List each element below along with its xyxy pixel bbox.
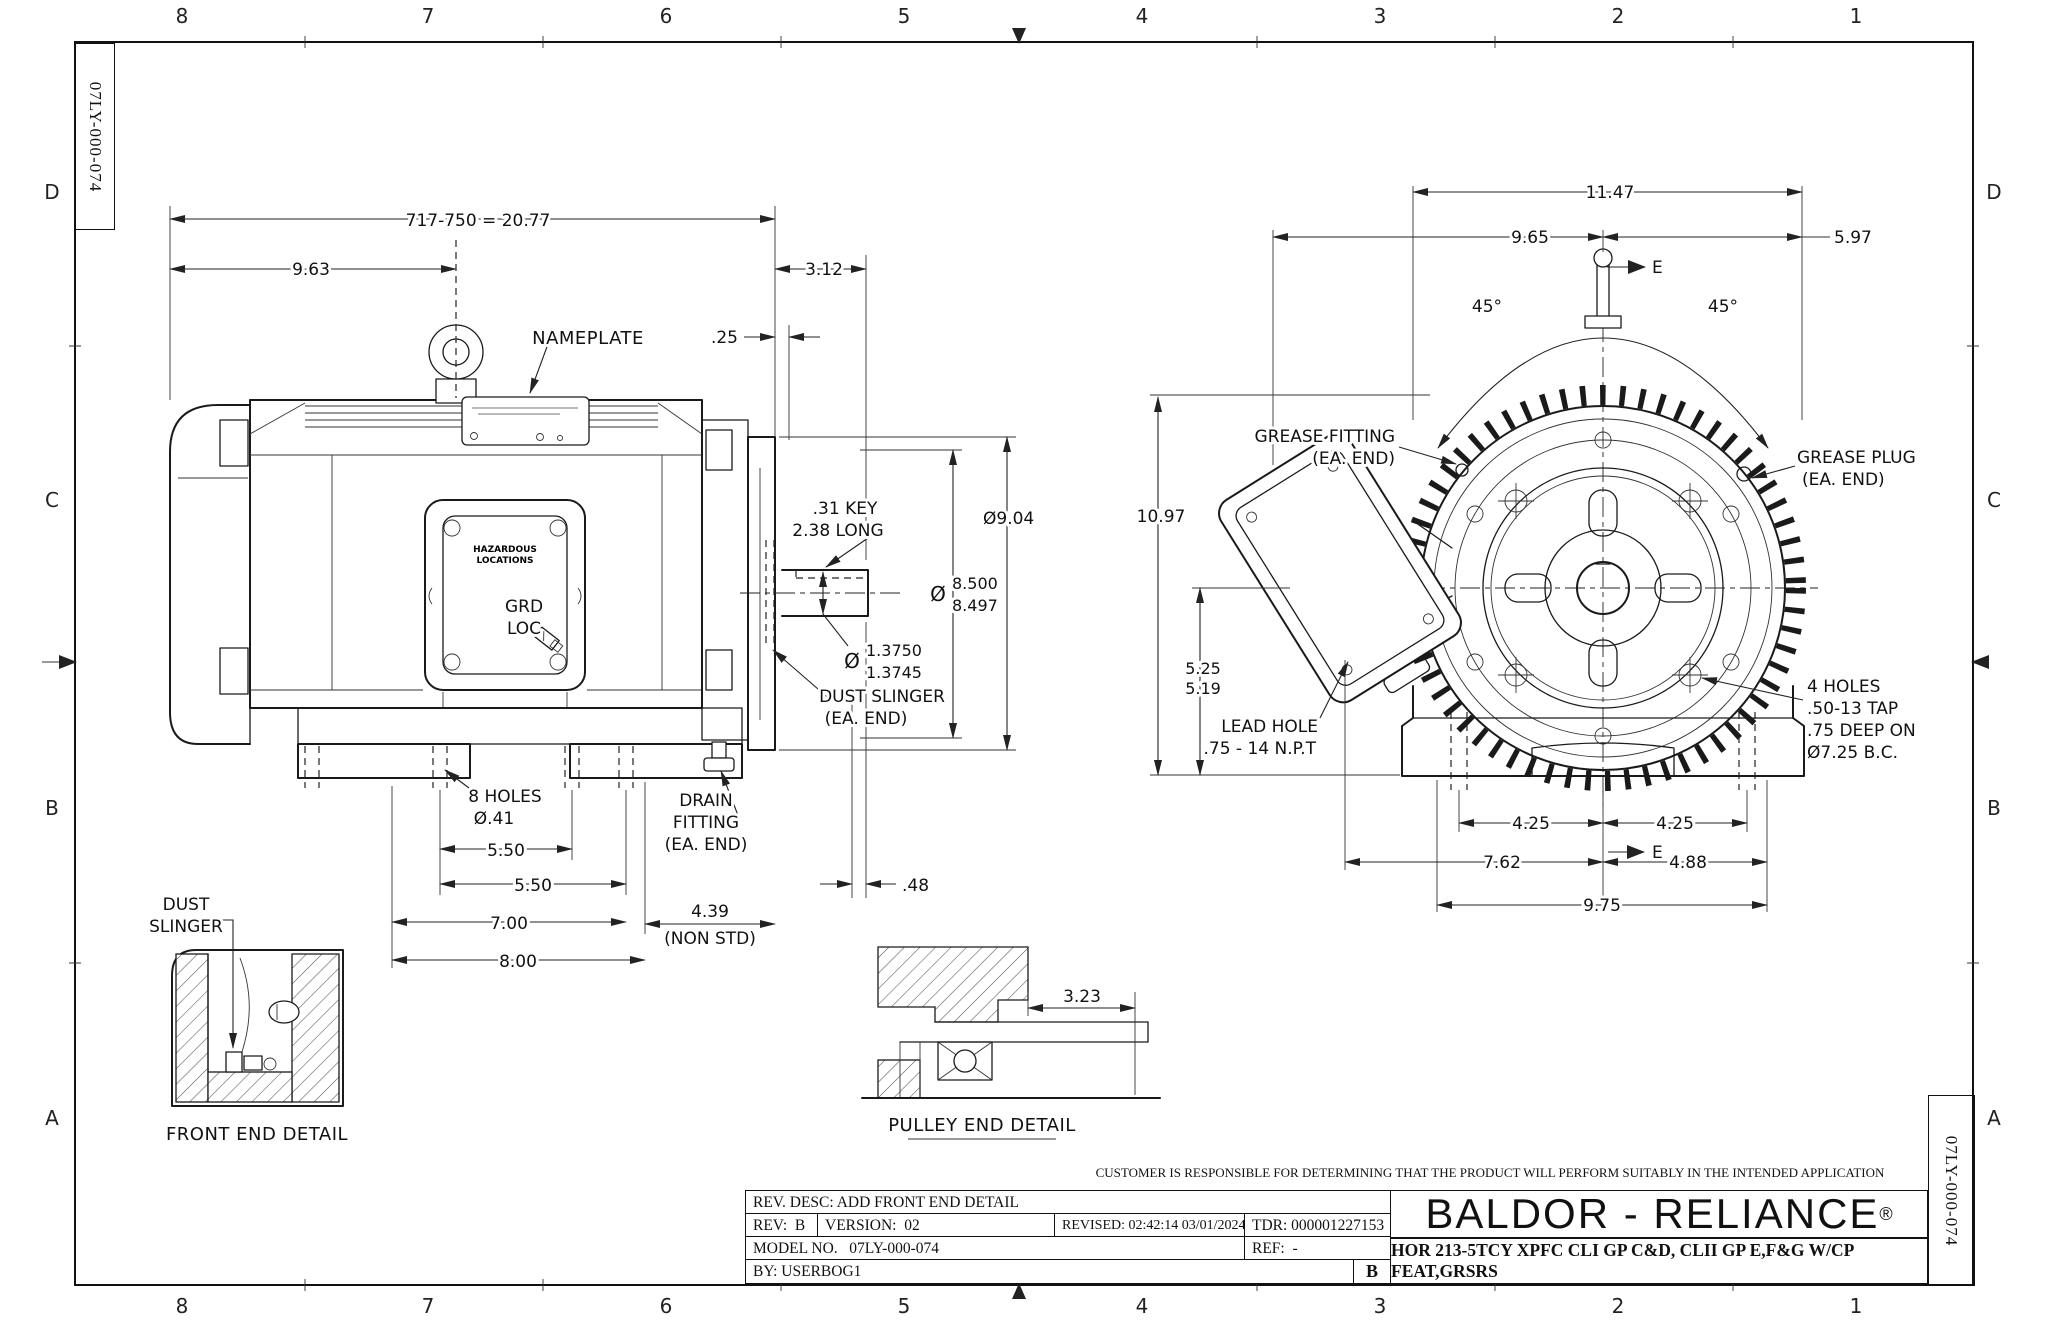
grid-top-7: 7 <box>414 4 442 28</box>
dim-5-25: 5.25 <box>1185 659 1221 678</box>
grid-top-3: 3 <box>1366 4 1394 28</box>
dim-0-48: .48 <box>902 876 929 896</box>
angle-45-left: 45° <box>1472 297 1502 317</box>
dust-slinger-callout-2: (EA. END) <box>825 709 908 729</box>
doc-number-box-top-left: 07LY-000-074 <box>75 43 115 230</box>
dim-5-19: 5.19 <box>1185 679 1221 698</box>
feet-holes-callout-1: 8 HOLES <box>468 787 541 807</box>
front-detail-label-1: DUST <box>163 895 210 915</box>
dim-4-25-left: 4.25 <box>1512 814 1550 834</box>
grd-label: GRD <box>505 597 543 617</box>
drive-end-bracket <box>702 325 789 750</box>
tap-holes-callout-3: .75 DEEP ON <box>1807 721 1916 741</box>
pulley-detail-caption: PULLEY END DETAIL <box>888 1115 1076 1136</box>
loc-label: LOC <box>507 619 541 639</box>
dim-dia-9-04: Ø9.04 <box>983 509 1034 529</box>
dim-4-88: 4.88 <box>1669 853 1707 873</box>
doc-number-box-bottom-right: 07LY-000-074 <box>1928 1095 1975 1286</box>
dia-symbol-ak: Ø <box>930 582 946 606</box>
grid-right-c: C <box>1980 488 2008 512</box>
feet-holes-callout-2: Ø.41 <box>474 809 514 829</box>
product-description-cell: HOR 213-5TCY XPFC CLI GP C&D, CLII GP E,… <box>1390 1238 1928 1284</box>
dim-shaft-1-3750: 1.3750 <box>866 641 922 660</box>
grid-top-2: 2 <box>1604 4 1632 28</box>
hazardous-label-2: LOCATIONS <box>476 556 533 566</box>
drawing-sheet: 717-750 = 20.77 9.63 3.12 .25 NAMEPLATE … <box>0 0 2048 1325</box>
grid-bottom-4: 4 <box>1128 1294 1156 1318</box>
grid-bottom-8: 8 <box>168 1294 196 1318</box>
side-view: 717-750 = 20.77 9.63 3.12 .25 NAMEPLATE … <box>170 206 1034 972</box>
dim-5-97: 5.97 <box>1834 228 1872 248</box>
key-callout-2: 2.38 LONG <box>792 521 883 541</box>
grease-plug-callout-2: (EA. END) <box>1802 470 1885 490</box>
grid-left-a: A <box>38 1106 66 1130</box>
drain-fitting <box>704 742 734 771</box>
revised-cell: REVISED: 02:42:14 03/01/2024 <box>1054 1213 1246 1238</box>
dim-ak-8-500: 8.500 <box>952 574 998 593</box>
dim-4-25-right: 4.25 <box>1656 814 1694 834</box>
rev-cell: REV: B <box>745 1213 819 1238</box>
doc-number-bottom-right: 07LY-000-074 <box>1942 1135 1962 1245</box>
grid-bottom-5: 5 <box>890 1294 918 1318</box>
tap-holes-callout-1: 4 HOLES <box>1807 677 1880 697</box>
grid-bottom-2: 2 <box>1604 1294 1632 1318</box>
section-arrow-bottom <box>1608 845 1645 859</box>
end-view-conduit-box <box>1213 428 1475 722</box>
angle-45-right: 45° <box>1708 297 1738 317</box>
grid-bottom-7: 7 <box>414 1294 442 1318</box>
disclaimer-note: CUSTOMER IS RESPONSIBLE FOR DETERMINING … <box>1095 1165 1885 1181</box>
registered-mark: ® <box>1879 1204 1892 1225</box>
grease-plug-callout-1: GREASE PLUG <box>1797 448 1916 468</box>
lead-hole-callout-1: LEAD HOLE <box>1221 717 1318 737</box>
grid-left-b: B <box>38 796 66 820</box>
nameplate <box>462 397 589 445</box>
dim-4-39-note: (NON STD) <box>664 929 756 949</box>
grid-bottom-6: 6 <box>652 1294 680 1318</box>
dim-3-23: 3.23 <box>1063 987 1101 1007</box>
drain-callout-3: (EA. END) <box>665 835 748 855</box>
dim-9-65: 9.65 <box>1511 228 1549 248</box>
grid-bottom-1: 1 <box>1842 1294 1870 1318</box>
dim-shaft-1-3745: 1.3745 <box>866 663 922 682</box>
dia-symbol-shaft: Ø <box>844 649 860 673</box>
by-cell: BY: USERBOG1 <box>745 1259 1391 1284</box>
tap-holes-callout-2: .50-13 TAP <box>1807 699 1898 719</box>
lead-hole-callout-2: .75 - 14 N.P.T <box>1203 739 1316 759</box>
engineering-drawing-canvas: 717-750 = 20.77 9.63 3.12 .25 NAMEPLATE … <box>0 0 2048 1325</box>
grid-top-4: 4 <box>1128 4 1156 28</box>
grease-fitting-callout-1: GREASE FITTING <box>1255 427 1395 447</box>
section-label-top: E <box>1652 258 1663 278</box>
pulley-end-detail: 3.23 PULLEY END DETAIL <box>862 947 1160 1139</box>
dim-7-00: 7.00 <box>490 914 528 934</box>
dim-5-50-b: 5.50 <box>514 876 552 896</box>
dim-9-75: 9.75 <box>1583 896 1621 916</box>
tap-holes-callout-4: Ø7.25 B.C. <box>1807 743 1898 763</box>
dim-7-62: 7.62 <box>1483 853 1521 873</box>
grease-fitting-callout-2: (EA. END) <box>1312 449 1395 469</box>
dim-4-39: 4.39 <box>691 902 729 922</box>
front-detail-label-2: SLINGER <box>149 917 223 937</box>
grid-top-8: 8 <box>168 4 196 28</box>
grid-right-a: A <box>1980 1106 2008 1130</box>
grid-right-d: D <box>1980 180 2008 204</box>
nameplate-label: NAMEPLATE <box>532 328 644 349</box>
grid-right-b: B <box>1980 796 2008 820</box>
motor-feet <box>298 708 742 788</box>
grid-bottom-3: 3 <box>1366 1294 1394 1318</box>
grid-top-1: 1 <box>1842 4 1870 28</box>
drain-callout-2: FITTING <box>673 813 739 833</box>
key-callout-1: .31 KEY <box>813 499 878 519</box>
tdr-cell: TDR: 000001227153 <box>1244 1213 1391 1238</box>
dim-ak-8-497: 8.497 <box>952 596 998 615</box>
dim-3-12: 3.12 <box>805 260 843 280</box>
dim-8-00: 8.00 <box>499 952 537 972</box>
dim-11-47: 11.47 <box>1586 183 1635 203</box>
doc-number-top-left: 07LY-000-074 <box>85 81 105 191</box>
hazardous-label-1: HAZARDOUS <box>473 545 537 555</box>
section-label-bottom: E <box>1652 843 1663 863</box>
grid-left-d: D <box>38 180 66 204</box>
dim-5-50-a: 5.50 <box>487 841 525 861</box>
model-no-cell: MODEL NO. 07LY-000-074 <box>745 1236 1246 1261</box>
end-view: 11.47 9.65 5.97 45° 45° E E 10.97 5.25 5… <box>1137 183 1916 916</box>
grid-left-c: C <box>38 488 66 512</box>
end-view-eyebolt <box>1585 249 1621 328</box>
rev-desc-cell: REV. DESC: ADD FRONT END DETAIL <box>745 1190 1391 1215</box>
dim-10-97: 10.97 <box>1137 507 1186 527</box>
eyebolt <box>429 240 483 403</box>
dust-slinger-callout-1: DUST SLINGER <box>819 687 945 707</box>
section-arrow-top <box>1607 260 1646 274</box>
brand-cell: BALDOR - RELIANCE® <box>1390 1190 1928 1238</box>
ref-cell: REF: - <box>1244 1236 1391 1261</box>
drain-callout-1: DRAIN <box>679 791 733 811</box>
front-detail-caption: FRONT END DETAIL <box>166 1124 348 1145</box>
dim-9-63: 9.63 <box>292 260 330 280</box>
dim-0-25: .25 <box>711 328 738 348</box>
brand-logo-text: BALDOR - RELIANCE <box>1425 1190 1879 1238</box>
corner-revision-cell: B <box>1353 1259 1391 1284</box>
grid-top-5: 5 <box>890 4 918 28</box>
front-end-detail: DUST SLINGER FRONT END DETAIL <box>149 895 348 1145</box>
dim-overall-length: 717-750 = 20.77 <box>406 211 551 231</box>
grid-top-6: 6 <box>652 4 680 28</box>
version-cell: VERSION: 02 <box>817 1213 1056 1238</box>
